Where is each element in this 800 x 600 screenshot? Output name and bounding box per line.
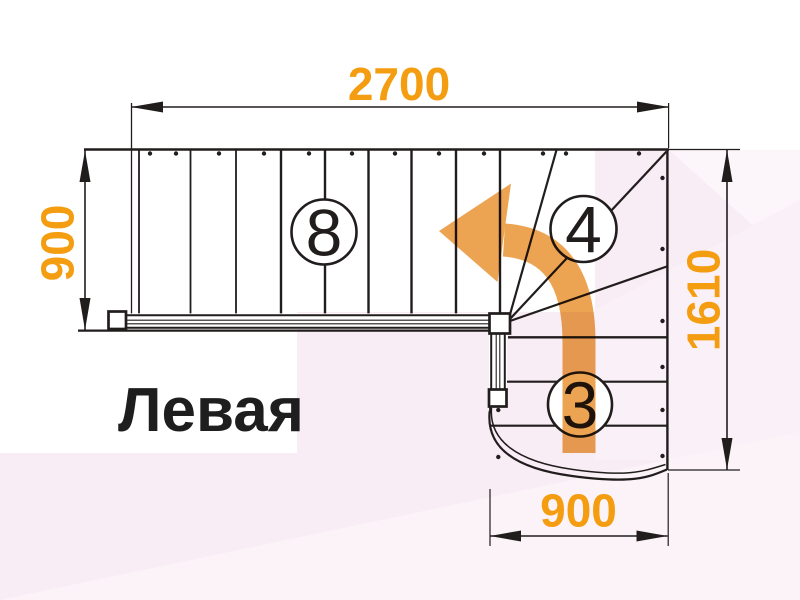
dimension-bottom-value: 900: [540, 485, 617, 537]
newel-post-center: [490, 314, 511, 334]
dim-arrow-down-icon: [80, 298, 91, 330]
dimension-left-value: 900: [32, 205, 84, 282]
dimension-left: 900: [32, 150, 91, 330]
dimension-top-value: 2700: [348, 58, 450, 110]
handrail-lower: [489, 333, 507, 391]
stair-plan-canvas: 2700 900 1610 900 8 4 3 Левая: [0, 0, 800, 600]
dim-arrow-right-icon: [637, 102, 669, 113]
dimension-right-value: 1610: [678, 249, 730, 351]
dim-arrow-left-icon: [131, 102, 163, 113]
background-shapes: [0, 150, 800, 600]
newel-post-lower: [489, 390, 507, 407]
newel-post-left: [109, 312, 127, 330]
dim-arrow-up-icon: [80, 151, 91, 183]
upper-flight-step-count: 8: [306, 196, 343, 270]
handrail-upper: [107, 313, 500, 329]
stair-plan-drawing: 2700 900 1610 900 8 4 3 Левая: [0, 0, 800, 600]
dimension-top: 2700: [131, 58, 669, 148]
plan-title: Левая: [118, 376, 304, 445]
